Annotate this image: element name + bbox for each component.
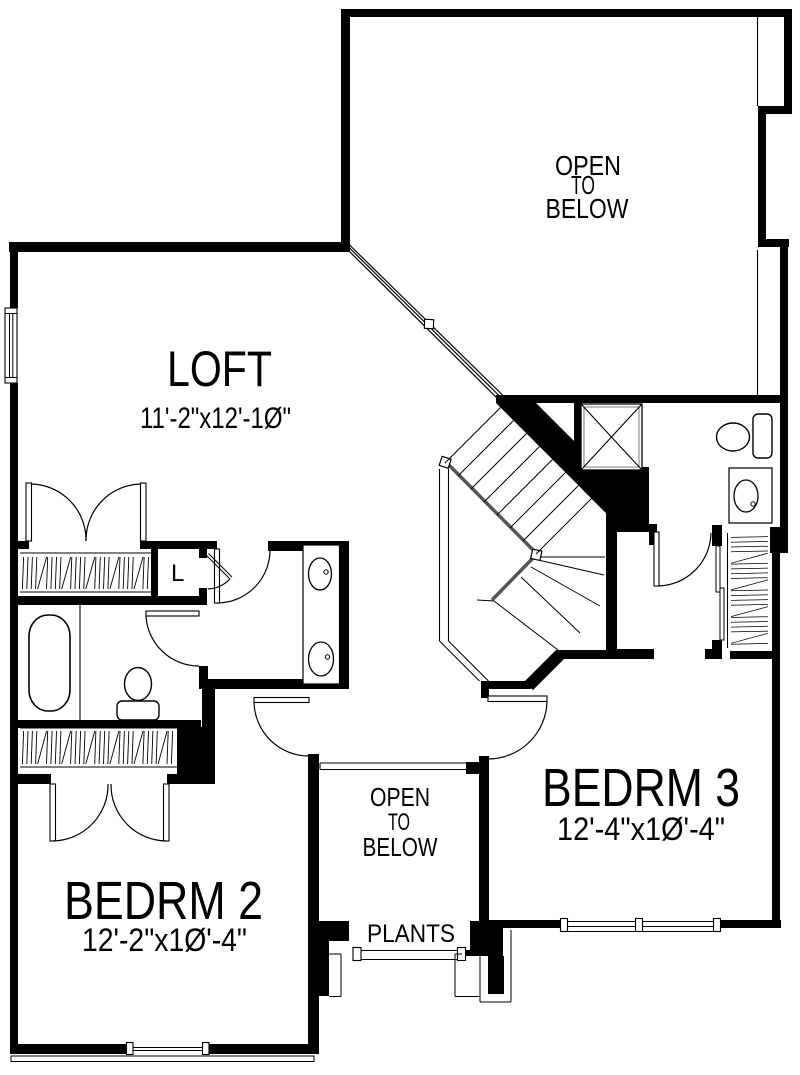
svg-text:BELOW: BELOW (363, 832, 438, 862)
svg-text:L: L (171, 560, 184, 587)
svg-text:11'-2"x12'-1Ø": 11'-2"x12'-1Ø" (140, 402, 291, 435)
svg-text:PLANTS: PLANTS (367, 920, 455, 948)
svg-text:BEDRM 3: BEDRM 3 (542, 758, 740, 818)
svg-text:LOFT: LOFT (167, 341, 272, 397)
svg-text:BELOW: BELOW (546, 193, 629, 224)
svg-text:OPEN: OPEN (370, 782, 430, 812)
svg-text:12'-2"x1Ø'-4": 12'-2"x1Ø'-4" (82, 922, 247, 958)
svg-text:12'-4"x1Ø'-4": 12'-4"x1Ø'-4" (557, 811, 725, 847)
